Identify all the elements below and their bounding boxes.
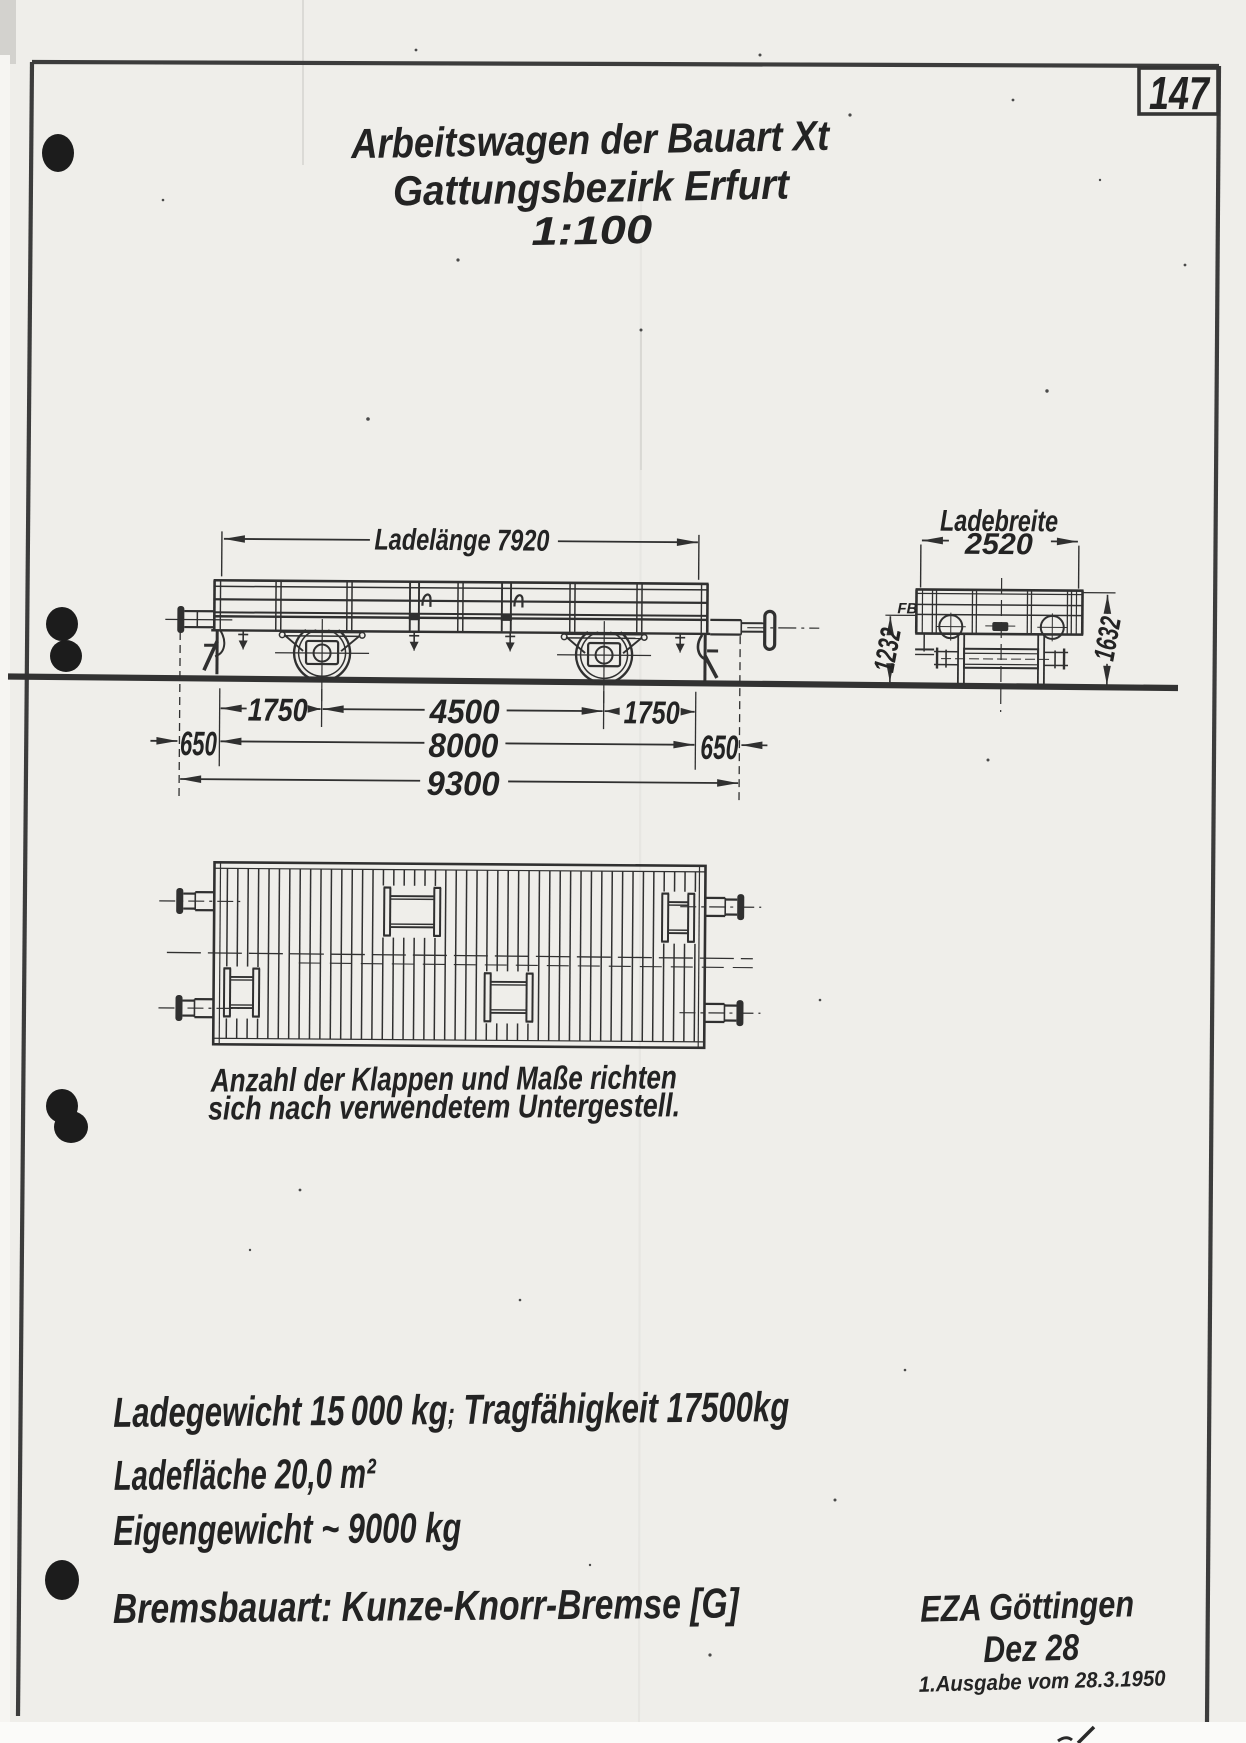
svg-text:Ladelänge 7920: Ladelänge 7920	[374, 523, 549, 557]
svg-text:Dez 28: Dez 28	[983, 1627, 1080, 1671]
svg-text:EZA Göttingen: EZA Göttingen	[920, 1583, 1135, 1630]
svg-text:4500: 4500	[429, 693, 500, 732]
svg-text:650: 650	[700, 729, 738, 767]
svg-text:1750: 1750	[248, 692, 308, 728]
svg-text:9300: 9300	[426, 765, 499, 804]
svg-text:650: 650	[180, 725, 217, 763]
svg-text:1750: 1750	[624, 694, 680, 730]
svg-text:Eigengewicht ~ 9000 kg: Eigengewicht ~ 9000 kg	[113, 1504, 461, 1554]
svg-text:147: 147	[1149, 67, 1211, 119]
svg-text:Bremsbauart: Kunze-Knorr-Brems: Bremsbauart: Kunze-Knorr-Bremse [G]	[113, 1579, 741, 1631]
svg-text:sich nach verwendetem Unterges: sich nach verwendetem Untergestell.	[208, 1086, 680, 1126]
svg-text:Ladefläche 20,0 m²: Ladefläche 20,0 m²	[114, 1450, 377, 1499]
svg-text:Gattungsbezirk Erfurt: Gattungsbezirk Erfurt	[393, 161, 792, 215]
svg-text:Arbeitswagen der Bauart Xt: Arbeitswagen der Bauart Xt	[350, 112, 831, 167]
svg-text:1:100: 1:100	[531, 208, 653, 254]
svg-text:8000: 8000	[428, 727, 498, 766]
svg-text:2520: 2520	[964, 528, 1034, 562]
